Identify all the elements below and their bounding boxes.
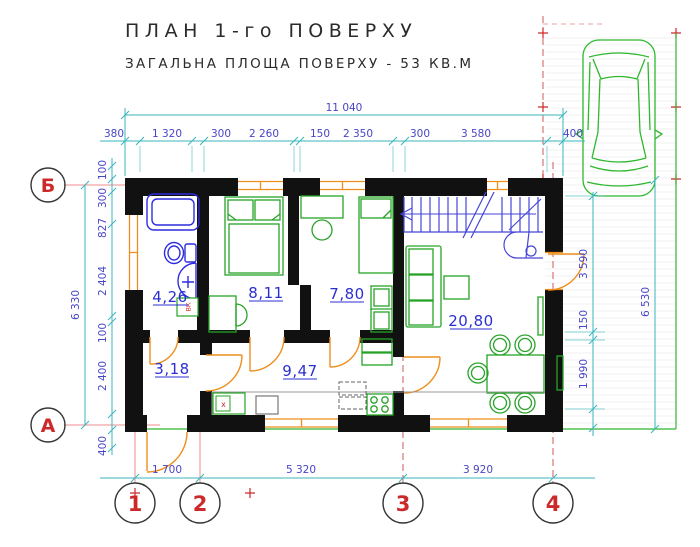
svg-text:2 400: 2 400 [97,361,109,391]
toilet-icon [165,243,197,264]
dimension-left-total [81,181,89,429]
svg-text:2 404: 2 404 [97,266,109,296]
svg-text:100: 100 [97,323,109,343]
stove-icon [367,394,393,415]
page-title: ПЛАН 1-го ПОВЕРХУ [125,20,417,42]
axis-col-1: 1 [128,492,143,516]
fridge-icon [339,382,366,409]
svg-text:400: 400 [97,436,109,456]
door-icons [147,254,584,472]
axis-row-b: Б [41,175,55,197]
room-label-bedroom1: 8,11 [248,284,283,302]
bedroom2-door-icon [330,337,360,367]
dim-top-total: 11 040 [326,102,363,114]
svg-text:400: 400 [563,128,583,140]
yard-hatch [545,33,676,429]
room-label-bathroom: 4,26 [152,288,187,306]
axis-row-a: А [41,415,56,437]
sofa-icon [406,246,441,327]
kitchen-sink-icon: x [213,393,245,414]
dim-right-total: 6 530 [640,287,652,317]
washer-icon [256,396,278,414]
room-label-hallway: 3,18 [154,360,189,378]
dimension-top-total [121,108,567,176]
bedroom1-door-icon [250,337,284,371]
double-bed-icon [225,197,283,275]
axis-col-3: 3 [396,492,411,516]
svg-text:150: 150 [578,310,590,330]
svg-text:3 920: 3 920 [463,464,493,476]
floor-plan-drawing: ПЛАН 1-го ПОВЕРХУ ЗАГАЛЬНА ПЛОЩА ПОВЕРХУ… [0,0,700,547]
dresser-icon [209,296,247,332]
svg-text:5 320: 5 320 [286,464,316,476]
dim-left-total: 6 330 [70,290,82,320]
axis-col-2: 2 [193,492,208,516]
sink-mark: x [221,400,226,409]
stairs-icon [401,192,543,258]
svg-text:380: 380 [104,128,124,140]
dimension-left-chain [108,158,116,455]
svg-text:827: 827 [97,218,109,238]
svg-text:300: 300 [410,128,430,140]
dimension-top-chain [100,137,585,172]
svg-text:1 320: 1 320 [152,128,182,140]
page-subtitle: ЗАГАЛЬНА ПЛОЩА ПОВЕРХУ - 53 КВ.М [125,56,473,72]
kitchen-living-door-icon [404,357,440,393]
svg-text:1 990: 1 990 [578,359,590,389]
room-label-bedroom2: 7,80 [329,285,364,303]
svg-text:300: 300 [211,128,231,140]
svg-text:2 260: 2 260 [249,128,279,140]
axis-col-4: 4 [546,492,561,516]
svg-text:2 350: 2 350 [343,128,373,140]
room-label-living: 20,80 [448,312,493,330]
svg-text:3 580: 3 580 [461,128,491,140]
single-bed-icon [359,197,393,273]
svg-text:1 700: 1 700 [152,464,182,476]
chair-icon [468,335,535,413]
bathtub-icon [147,194,199,230]
svg-text:3 590: 3 590 [578,249,590,279]
wardrobe-icon [371,286,392,332]
dining-table-icon [468,335,544,413]
coffee-table-icon [444,276,469,299]
svg-text:150: 150 [310,128,330,140]
svg-text:100: 100 [97,160,109,180]
svg-text:300: 300 [97,188,109,208]
hall-kitchen-door-icon [206,355,242,391]
room-label-kitchen: 9,47 [282,362,317,380]
desk-icon [301,196,343,240]
